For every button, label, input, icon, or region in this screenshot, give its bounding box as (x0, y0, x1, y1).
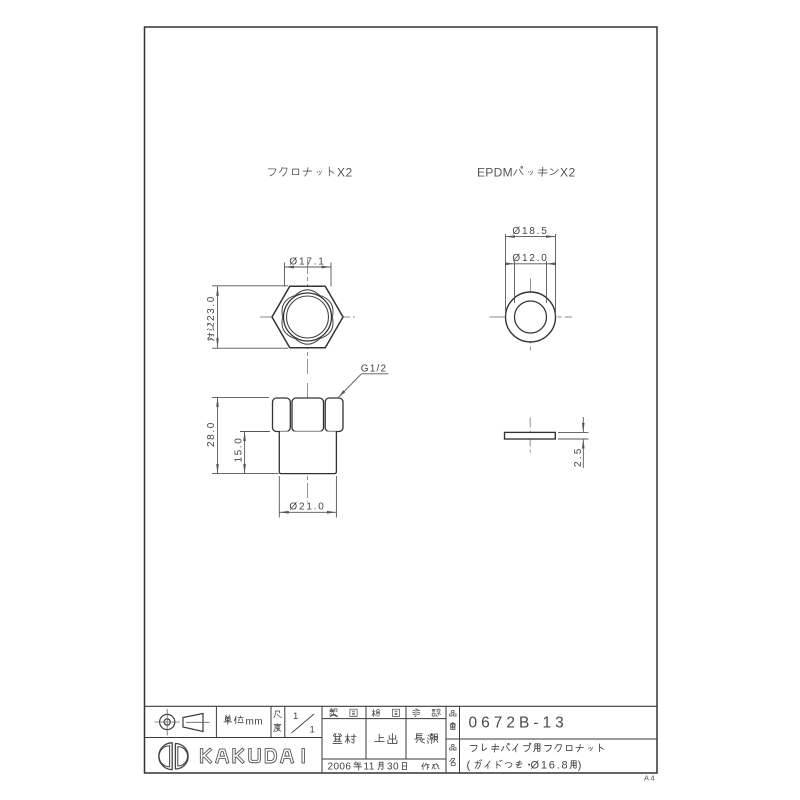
svg-text:mm: mm (246, 717, 264, 728)
svg-text:X2: X2 (337, 166, 353, 180)
svg-text:Ø16.8: Ø16.8 (531, 760, 570, 772)
svg-text:): ) (578, 760, 582, 772)
svg-text:11: 11 (364, 762, 375, 773)
svg-text:28.0: 28.0 (206, 421, 217, 447)
svg-text:30: 30 (387, 762, 399, 773)
svg-text:(: ( (467, 760, 471, 772)
svg-text:2.5: 2.5 (573, 446, 584, 467)
svg-text:G1/2: G1/2 (361, 364, 387, 375)
svg-text:Ø12.0: Ø12.0 (512, 253, 548, 264)
svg-text:Ø17.1: Ø17.1 (289, 257, 325, 268)
svg-text:1: 1 (310, 725, 315, 736)
svg-text:2006: 2006 (328, 762, 352, 773)
svg-text:A4: A4 (644, 774, 656, 783)
svg-text:23.0: 23.0 (206, 295, 217, 321)
svg-text:0672B-13: 0672B-13 (469, 715, 568, 732)
svg-text:Ø21.0: Ø21.0 (289, 502, 325, 513)
svg-text:15.0: 15.0 (233, 437, 244, 463)
svg-text:1: 1 (293, 711, 298, 722)
svg-text:Ø18.5: Ø18.5 (512, 226, 548, 237)
svg-text:X2: X2 (560, 166, 576, 180)
svg-text:EPDM: EPDM (477, 166, 513, 180)
